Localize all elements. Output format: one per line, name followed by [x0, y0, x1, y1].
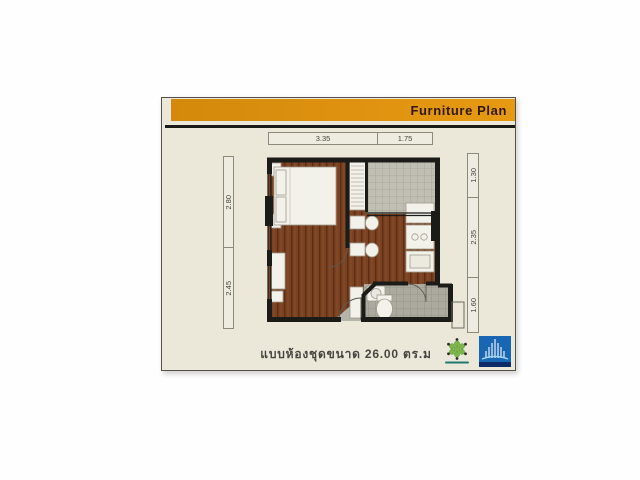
dimension-label: 1.75	[378, 132, 433, 145]
green-logo-tagline	[445, 362, 469, 364]
pillow	[276, 197, 286, 222]
counter-inner	[410, 255, 430, 268]
dimension-strip-top: 3.35 1.75	[268, 132, 433, 145]
blue-skyscraper-logo	[479, 336, 511, 367]
floor-plan-drawing	[263, 154, 475, 331]
dining-table	[350, 216, 365, 229]
dimension-strip-left: 2.80 2.45	[223, 156, 234, 329]
pillow	[276, 170, 286, 195]
dimension-label: 2.80	[224, 195, 233, 210]
dimension-label: 2.45	[224, 281, 233, 296]
blue-logo-nameplate	[479, 362, 511, 367]
sink-basin	[412, 234, 418, 240]
dining-table	[350, 243, 365, 256]
green-flower-emblem-logo	[441, 337, 473, 367]
page-title: Furniture Plan	[410, 103, 515, 118]
dining-chair	[366, 216, 379, 230]
logo-group	[441, 336, 511, 367]
sofa	[271, 253, 285, 289]
sink-basin	[421, 234, 427, 240]
kitchen-counter-sink	[406, 225, 434, 249]
dining-chair	[366, 243, 379, 257]
exterior-ledge	[452, 302, 464, 328]
toilet	[377, 299, 393, 319]
header-bar: Furniture Plan	[171, 99, 515, 121]
dimension-label: 3.35	[268, 132, 378, 145]
brochure-page: Furniture Plan 3.35 1.75 2.80 2.45 1.30 …	[161, 97, 516, 371]
side-table	[271, 291, 283, 302]
wall-left-pillar	[265, 196, 273, 226]
header-rule	[165, 125, 515, 128]
